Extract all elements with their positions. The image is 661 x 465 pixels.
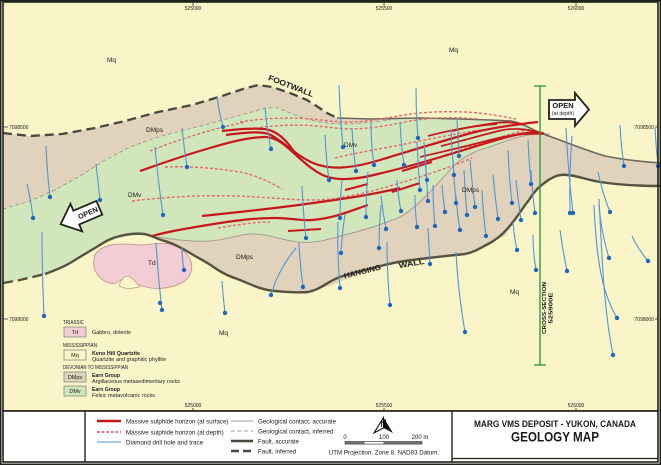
svg-text:DMps: DMps — [68, 375, 83, 381]
svg-text:526000: 526000 — [568, 6, 585, 12]
svg-text:GEOLOGY MAP: GEOLOGY MAP — [511, 430, 599, 445]
svg-text:7098000: 7098000 — [635, 317, 655, 323]
svg-text:CROSS-SECTION: CROSS-SECTION — [542, 282, 548, 334]
svg-text:Mq: Mq — [107, 57, 116, 64]
svg-text:Diamond drill hole and trace: Diamond drill hole and trace — [126, 440, 204, 447]
svg-text:DEVONIAN TO MISSISSIPPIAN: DEVONIAN TO MISSISSIPPIAN — [63, 365, 128, 371]
svg-text:DMps: DMps — [236, 254, 254, 261]
svg-text:UTM Projection. Zone 8. NAD83: UTM Projection. Zone 8. NAD83 Datum. — [329, 450, 440, 457]
svg-text:525500: 525500 — [376, 6, 393, 12]
svg-text:Quartzite and graphitic phylli: Quartzite and graphitic phyllite — [92, 357, 166, 363]
svg-text:7098500: 7098500 — [9, 125, 29, 131]
svg-text:DMv: DMv — [344, 142, 358, 149]
svg-text:DMps: DMps — [462, 187, 480, 194]
svg-text:200 m: 200 m — [412, 435, 429, 441]
svg-text:(at depth): (at depth) — [552, 111, 574, 117]
svg-text:TRIASSIC: TRIASSIC — [63, 320, 84, 326]
svg-text:Mq: Mq — [219, 330, 228, 337]
svg-text:Geological contact, accurate: Geological contact, accurate — [258, 419, 337, 426]
svg-text:DMps: DMps — [146, 127, 164, 134]
svg-text:MISSISSIPPIAN: MISSISSIPPIAN — [63, 343, 97, 349]
svg-text:100: 100 — [379, 435, 390, 441]
svg-text:7098500: 7098500 — [635, 125, 655, 131]
svg-text:DMv: DMv — [69, 389, 81, 395]
svg-text:DMv: DMv — [128, 192, 142, 199]
svg-text:MARG VMS DEPOSIT - YUKON, CANA: MARG VMS DEPOSIT - YUKON, CANADA — [474, 419, 636, 430]
svg-text:Massive sulphide horizon (at d: Massive sulphide horizon (at depth) — [126, 430, 224, 437]
svg-text:Mq: Mq — [449, 47, 458, 54]
svg-text:OPEN: OPEN — [552, 101, 573, 110]
svg-text:Fault, inferred: Fault, inferred — [258, 449, 297, 456]
svg-text:Massive sulphide horizon (at s: Massive sulphide horizon (at surface) — [126, 419, 228, 426]
svg-text:Fault, accurate: Fault, accurate — [258, 439, 299, 446]
svg-text:Felsic metavolcanic rocks: Felsic metavolcanic rocks — [92, 393, 155, 399]
svg-text:525000: 525000 — [185, 6, 202, 12]
svg-text:525900E: 525900E — [549, 292, 555, 324]
svg-text:Td: Td — [72, 330, 78, 336]
svg-text:Geological contact, inferred: Geological contact, inferred — [258, 429, 334, 436]
svg-text:Mq: Mq — [510, 289, 519, 296]
svg-text:7098000: 7098000 — [9, 317, 29, 323]
svg-text:Td: Td — [148, 260, 156, 267]
svg-text:Gabbro, dolerite: Gabbro, dolerite — [92, 330, 131, 336]
svg-text:Argillaceous metasedimentary r: Argillaceous metasedimentary rocks — [92, 379, 180, 385]
svg-text:Mq: Mq — [71, 353, 79, 359]
